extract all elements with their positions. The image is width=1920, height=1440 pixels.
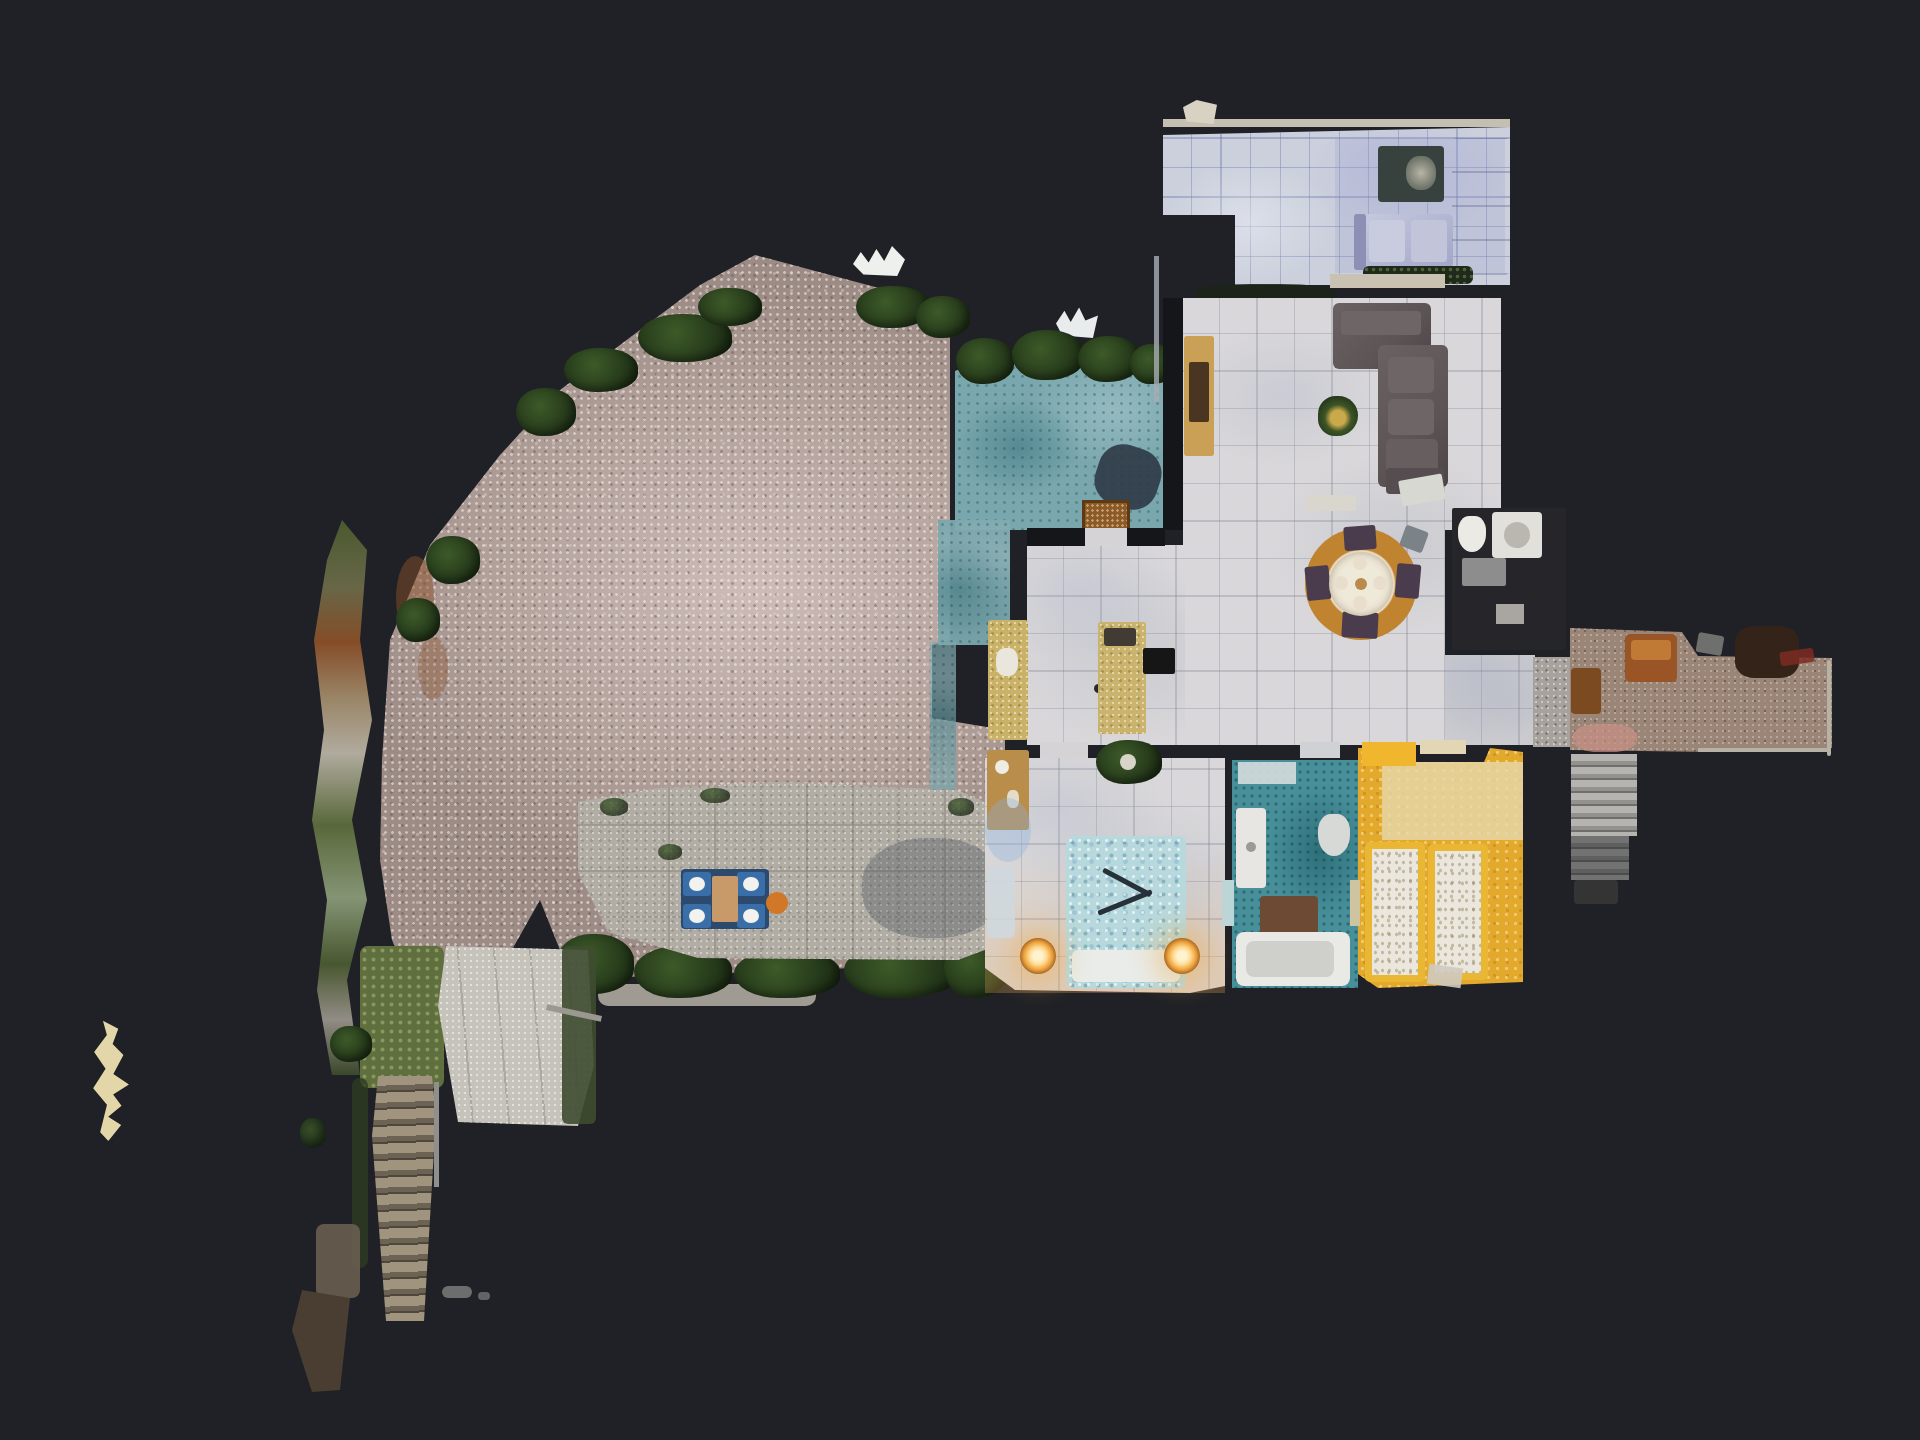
stair-railing (434, 1082, 439, 1187)
yellow-wall-tab (1362, 742, 1416, 766)
garden-bush (516, 388, 576, 436)
countertop-items (1104, 628, 1136, 646)
sofa-cushion (1341, 311, 1421, 335)
door-threshold (1420, 740, 1466, 754)
lounge-top-wall (1163, 119, 1510, 127)
entry-landing[interactable] (1533, 657, 1573, 747)
entry-edge-line (1827, 660, 1831, 756)
stairs-fade (1574, 880, 1618, 904)
moss-tuft (600, 798, 628, 816)
tub-basin (1246, 941, 1334, 977)
terrace-plant (956, 338, 1014, 384)
door-threshold (1300, 742, 1340, 758)
toilet[interactable] (1458, 516, 1486, 552)
lounge-wall-tab (1183, 100, 1217, 124)
bed-throw-pattern (1097, 889, 1153, 915)
garden-bush (396, 598, 440, 642)
dollhouse-3d-view[interactable] (0, 0, 1920, 1440)
dining-chair[interactable] (1343, 525, 1377, 551)
dining-chair[interactable] (1304, 565, 1331, 601)
bedside-lamp (1164, 938, 1200, 974)
kitchen-island[interactable] (1098, 622, 1146, 734)
point-cloud-fragment (84, 1018, 144, 1142)
moss-tuft (700, 788, 730, 803)
bedside-lamp (1020, 938, 1056, 974)
shower-glass (1238, 762, 1296, 784)
terrace-door-threshold (1085, 528, 1127, 546)
terrace-wall (1163, 298, 1183, 530)
plant-pot (1120, 754, 1136, 770)
patio-chair[interactable] (683, 904, 711, 928)
lounge-sofa-seat[interactable] (1363, 214, 1453, 268)
terrace-edge (930, 642, 956, 790)
window-light (985, 798, 1031, 862)
debris-speck (442, 1286, 472, 1298)
point-cloud-fragment (853, 246, 905, 276)
path-tail-end (292, 1290, 360, 1392)
interior-stairs-lower (1571, 836, 1629, 880)
lounge-sill-strip (1330, 274, 1445, 288)
sideboard-strip (1306, 495, 1356, 511)
moss-tuft (658, 844, 682, 860)
sink-basin (1504, 522, 1530, 548)
patio-table-runner (712, 876, 738, 922)
dresser-items (995, 760, 1009, 774)
path-grass (360, 946, 444, 1088)
moss-tuft (948, 798, 974, 816)
twin-bed[interactable] (1365, 842, 1425, 982)
centerpiece (1355, 578, 1367, 590)
table-reflection (1406, 156, 1436, 190)
dining-table[interactable] (1329, 552, 1393, 616)
garden-bush (698, 288, 762, 326)
twin-bed[interactable] (1428, 844, 1488, 980)
entry-armchair[interactable] (1625, 634, 1677, 682)
plate (743, 877, 759, 891)
outdoor-staircase[interactable] (372, 1076, 436, 1321)
plate (689, 877, 705, 891)
bathtub[interactable] (1236, 932, 1350, 986)
bath-mat (1462, 558, 1506, 586)
patio-cushion (766, 892, 788, 914)
entry-edge-line (1698, 748, 1830, 752)
place-setting (1353, 596, 1367, 610)
bathroom-fragment (1496, 604, 1524, 624)
chair-cushion (1631, 640, 1671, 660)
bedroom-chair[interactable] (987, 866, 1015, 938)
bathroom-sink[interactable] (1492, 512, 1542, 558)
sofa-cushion (1388, 357, 1434, 393)
rust-patch (418, 636, 448, 700)
path-hedge-strip (562, 946, 596, 1124)
lounge-sofa-arm (1354, 214, 1366, 270)
tv-console[interactable] (1184, 336, 1214, 456)
hall-to-entry[interactable] (1445, 655, 1535, 745)
kitchen-counter[interactable] (988, 620, 1028, 740)
garden-bush (426, 536, 480, 584)
garden-bush (916, 296, 970, 338)
tv-panel (1189, 362, 1209, 422)
patio-chair[interactable] (683, 872, 711, 896)
entry-bench[interactable] (1571, 668, 1601, 714)
sofa-cushion (1369, 220, 1405, 262)
patio-shadow (862, 838, 1002, 938)
wall-edge-line (1154, 256, 1159, 402)
patio-chair[interactable] (737, 872, 765, 896)
lounge-sofa-chaise[interactable] (1452, 138, 1510, 275)
entry-gray-item (1695, 632, 1724, 656)
door-threshold (1040, 742, 1088, 758)
dining-chair[interactable] (1395, 563, 1422, 599)
patio-chair[interactable] (737, 904, 765, 928)
door-threshold (1350, 880, 1360, 926)
sectional-sofa-right[interactable] (1378, 345, 1448, 487)
sofa-cushion (1388, 399, 1434, 435)
faucet (1246, 842, 1256, 852)
debris-speck (478, 1292, 490, 1300)
bedroom-plant (1096, 740, 1162, 784)
sofa-cushion (1411, 220, 1447, 262)
stove[interactable] (1143, 648, 1175, 674)
interior-stairs[interactable] (1571, 754, 1637, 836)
pink-runner (1573, 724, 1637, 752)
lounge-coffee-table[interactable] (1378, 146, 1444, 202)
path-tail (316, 1224, 360, 1298)
place-setting (1353, 556, 1367, 570)
bedroom-cream-area (1382, 762, 1523, 840)
plate (743, 909, 759, 923)
stair-bush (300, 1118, 326, 1148)
place-setting (1373, 576, 1387, 590)
vanity-sink[interactable] (1236, 808, 1266, 888)
toilet[interactable] (1318, 814, 1350, 856)
plate (689, 909, 705, 923)
door-threshold (1222, 880, 1234, 926)
terrace-plant (1012, 330, 1084, 380)
garden-bush (564, 348, 638, 392)
place-setting (1334, 576, 1348, 590)
kitchen-sink (996, 648, 1018, 676)
stair-bush (330, 1026, 372, 1062)
